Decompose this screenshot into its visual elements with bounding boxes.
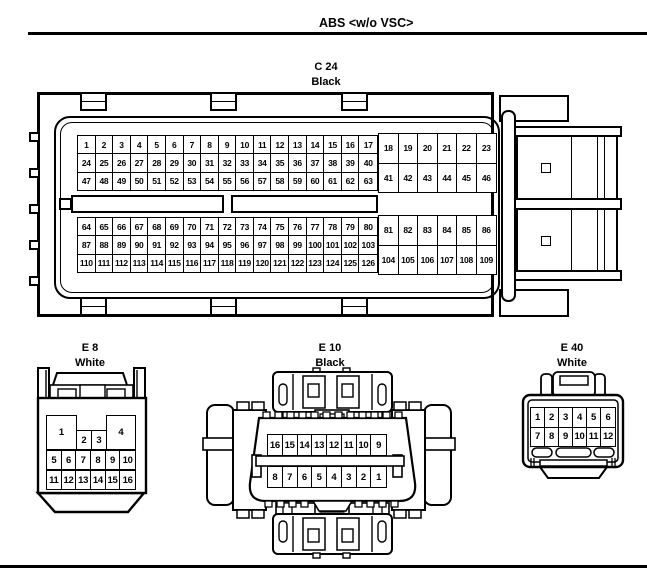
pin-102: 102 [342,236,360,254]
pin-19: 19 [399,134,419,164]
c24-side-rib [29,276,38,286]
pin-4: 4 [131,136,149,154]
c24-side-rib [29,168,38,178]
pin-1: 1 [78,136,96,154]
pin-38: 38 [324,154,342,172]
pin-97: 97 [254,236,272,254]
pin-29: 29 [166,154,184,172]
pin-11: 11 [587,428,601,447]
pin-1: 1 [46,415,77,450]
pin-14: 14 [91,471,106,489]
pin-58: 58 [271,173,289,190]
pin-3: 3 [113,136,131,154]
e40-label: E 40 [542,342,602,355]
pin-10: 10 [236,136,254,154]
pin-4: 4 [573,408,587,428]
footer-rule [0,565,647,568]
pin-41: 41 [379,164,399,193]
pin-12: 12 [271,136,289,154]
pin-28: 28 [148,154,166,172]
pin-2: 2 [76,430,92,450]
pin-46: 46 [477,164,497,193]
pin-51: 51 [148,173,166,190]
pin-62: 62 [342,173,360,190]
e10-label: E 10 [300,342,360,355]
pin-20: 20 [418,134,438,164]
c24-mount-tab-top [210,92,237,111]
pin-105: 105 [399,246,419,275]
pin-104: 104 [379,246,399,275]
pin-81: 81 [379,216,399,246]
pin-125: 125 [342,255,360,272]
pin-52: 52 [166,173,184,190]
pin-110: 110 [78,255,96,272]
pin-8: 8 [91,451,106,469]
pin-6: 6 [601,408,615,428]
pin-69: 69 [166,218,184,236]
pin-47: 47 [78,173,96,190]
pin-114: 114 [148,255,166,272]
pin-6: 6 [298,467,313,487]
pin-7: 7 [184,136,202,154]
pin-71: 71 [201,218,219,236]
pin-45: 45 [457,164,477,193]
pin-3: 3 [342,467,357,487]
c24-retainer-bottom-bar [512,270,622,281]
pin-9: 9 [106,451,121,469]
pin-100: 100 [307,236,325,254]
pin-25: 25 [96,154,114,172]
pin-59: 59 [289,173,307,190]
pin-68: 68 [148,218,166,236]
pin-37: 37 [307,154,325,172]
pin-84: 84 [438,216,458,246]
pin-6: 6 [62,451,77,469]
pin-70: 70 [184,218,202,236]
pin-9: 9 [219,136,237,154]
pin-24: 24 [78,154,96,172]
pin-8: 8 [201,136,219,154]
e10-pin-row-bottom: 87654321 [267,466,387,488]
c24-pin-grid-right-bottom: 818283848586104105106107108109 [378,215,497,275]
e10-top-bracket [273,368,392,412]
pin-80: 80 [359,218,377,236]
pin-12: 12 [62,471,77,489]
c24-color-label: Black [296,76,356,89]
page-title: ABS <w/o VSC> [319,16,413,30]
pin-8: 8 [545,428,559,447]
pin-115: 115 [166,255,184,272]
pin-124: 124 [324,255,342,272]
e8-pin-row-1: 1 2 3 4 [46,415,136,450]
pin-5: 5 [148,136,166,154]
pin-67: 67 [131,218,149,236]
pin-92: 92 [166,236,184,254]
pin-5: 5 [587,408,601,428]
pin-79: 79 [342,218,360,236]
pin-7: 7 [283,467,298,487]
pin-10: 10 [573,428,587,447]
pin-56: 56 [236,173,254,190]
c24-pin-grid-right-top: 181920212223414243444546 [378,133,497,193]
e8-label: E 8 [60,342,120,355]
pin-64: 64 [78,218,96,236]
c24-side-rib [29,204,38,214]
c24-side-rib [29,240,38,250]
pin-8: 8 [268,467,283,487]
pin-39: 39 [342,154,360,172]
e10-main-housing [250,412,415,511]
pin-53: 53 [184,173,202,190]
pin-15: 15 [324,136,342,154]
pin-27: 27 [131,154,149,172]
e10-bottom-bracket [273,514,392,558]
pin-98: 98 [271,236,289,254]
pin-48: 48 [96,173,114,190]
pin-14: 14 [307,136,325,154]
c24-pin-grid-left-bottom: 6465666768697071727374757677787980878889… [77,217,378,273]
pin-117: 117 [201,255,219,272]
pin-65: 65 [96,218,114,236]
pin-3: 3 [91,430,107,450]
pin-49: 49 [113,173,131,190]
pin-103: 103 [359,236,377,254]
pin-12: 12 [327,435,342,455]
pin-32: 32 [219,154,237,172]
pin-107: 107 [438,246,458,275]
pin-7: 7 [76,451,91,469]
pin-34: 34 [254,154,272,172]
pin-61: 61 [324,173,342,190]
c24-retainer-hole [541,236,551,246]
pin-44: 44 [438,164,458,193]
e40-pin-grid: 123456789101112 [530,407,616,447]
wiring-diagram-page: ABS <w/o VSC> C 24 Black 123456789101112… [0,0,647,573]
pin-60: 60 [307,173,325,190]
pin-112: 112 [113,255,131,272]
pin-86: 86 [477,216,497,246]
pin-74: 74 [254,218,272,236]
e8-pin-row-2: 5678910 [46,450,136,470]
pin-1: 1 [371,467,386,487]
pin-23: 23 [477,134,497,164]
pin-1: 1 [531,408,545,428]
e10-connector-body [203,368,455,558]
pin-9: 9 [371,435,386,455]
pin-16: 16 [342,136,360,154]
c24-side-rib [29,132,38,142]
c24-mount-tab-top [80,92,107,111]
pin-119: 119 [236,255,254,272]
c24-retainer-mid-bar [512,198,622,210]
pin-16: 16 [120,471,135,489]
pin-42: 42 [399,164,419,193]
pin-13: 13 [76,471,91,489]
pin-93: 93 [184,236,202,254]
pin-82: 82 [399,216,419,246]
pin-15: 15 [106,471,121,489]
pin-3: 3 [559,408,573,428]
pin-5: 5 [47,451,62,469]
pin-18: 18 [379,134,399,164]
pin-33: 33 [236,154,254,172]
pin-30: 30 [184,154,202,172]
c24-lock-bar [501,110,516,302]
pin-22: 22 [457,134,477,164]
pin-76: 76 [289,218,307,236]
c24-retainer-hole [541,163,551,173]
pin-108: 108 [457,246,477,275]
pin-83: 83 [418,216,438,246]
pin-55: 55 [219,173,237,190]
c24-label: C 24 [296,61,356,74]
pin-36: 36 [289,154,307,172]
pin-21: 21 [438,134,458,164]
e10-pin-row-top: 161514131211109 [267,434,387,456]
pin-126: 126 [359,255,377,272]
pin-10: 10 [357,435,372,455]
pin-91: 91 [148,236,166,254]
pin-57: 57 [254,173,272,190]
pin-7: 7 [531,428,545,447]
pin-85: 85 [457,216,477,246]
pin-94: 94 [201,236,219,254]
pin-50: 50 [131,173,149,190]
pin-2: 2 [545,408,559,428]
e8-pin-row-3: 111213141516 [46,470,136,490]
c24-pin-grid-left-top: 1234567891011121314151617242526272829303… [77,135,378,191]
pin-121: 121 [271,255,289,272]
pin-123: 123 [307,255,325,272]
pin-87: 87 [78,236,96,254]
pin-4: 4 [106,415,136,450]
c24-mount-tab-top [341,92,368,111]
pin-106: 106 [418,246,438,275]
header-rule [28,32,647,35]
pin-54: 54 [201,173,219,190]
pin-66: 66 [113,218,131,236]
c24-retainer-top-bar [512,126,622,137]
pin-2: 2 [357,467,372,487]
pin-13: 13 [312,435,327,455]
c24-mount-tab-bottom [341,297,368,316]
pin-14: 14 [298,435,313,455]
pin-15: 15 [283,435,298,455]
pin-11: 11 [342,435,357,455]
pin-122: 122 [289,255,307,272]
pin-95: 95 [219,236,237,254]
pin-2: 2 [96,136,114,154]
pin-11: 11 [254,136,272,154]
pin-101: 101 [324,236,342,254]
pin-111: 111 [96,255,114,272]
pin-5: 5 [312,467,327,487]
pin-9: 9 [559,428,573,447]
pin-96: 96 [236,236,254,254]
pin-90: 90 [131,236,149,254]
pin-99: 99 [289,236,307,254]
pin-72: 72 [219,218,237,236]
pin-12: 12 [601,428,615,447]
pin-16: 16 [268,435,283,455]
pin-109: 109 [477,246,497,275]
pin-120: 120 [254,255,272,272]
c24-mount-tab-bottom [210,297,237,316]
pin-77: 77 [307,218,325,236]
pin-89: 89 [113,236,131,254]
pin-40: 40 [359,154,377,172]
pin-118: 118 [219,255,237,272]
pin-6: 6 [166,136,184,154]
pin-35: 35 [271,154,289,172]
c24-center-slot-right [231,195,378,213]
pin-116: 116 [184,255,202,272]
pin-63: 63 [359,173,377,190]
pin-113: 113 [131,255,149,272]
pin-17: 17 [359,136,377,154]
pin-11: 11 [47,471,62,489]
pin-26: 26 [113,154,131,172]
pin-31: 31 [201,154,219,172]
c24-mount-tab-bottom [80,297,107,316]
pin-4: 4 [327,467,342,487]
pin-43: 43 [418,164,438,193]
pin-13: 13 [289,136,307,154]
c24-center-slot-left [71,195,224,213]
pin-10: 10 [120,451,135,469]
pin-88: 88 [96,236,114,254]
pin-75: 75 [271,218,289,236]
pin-73: 73 [236,218,254,236]
pin-78: 78 [324,218,342,236]
